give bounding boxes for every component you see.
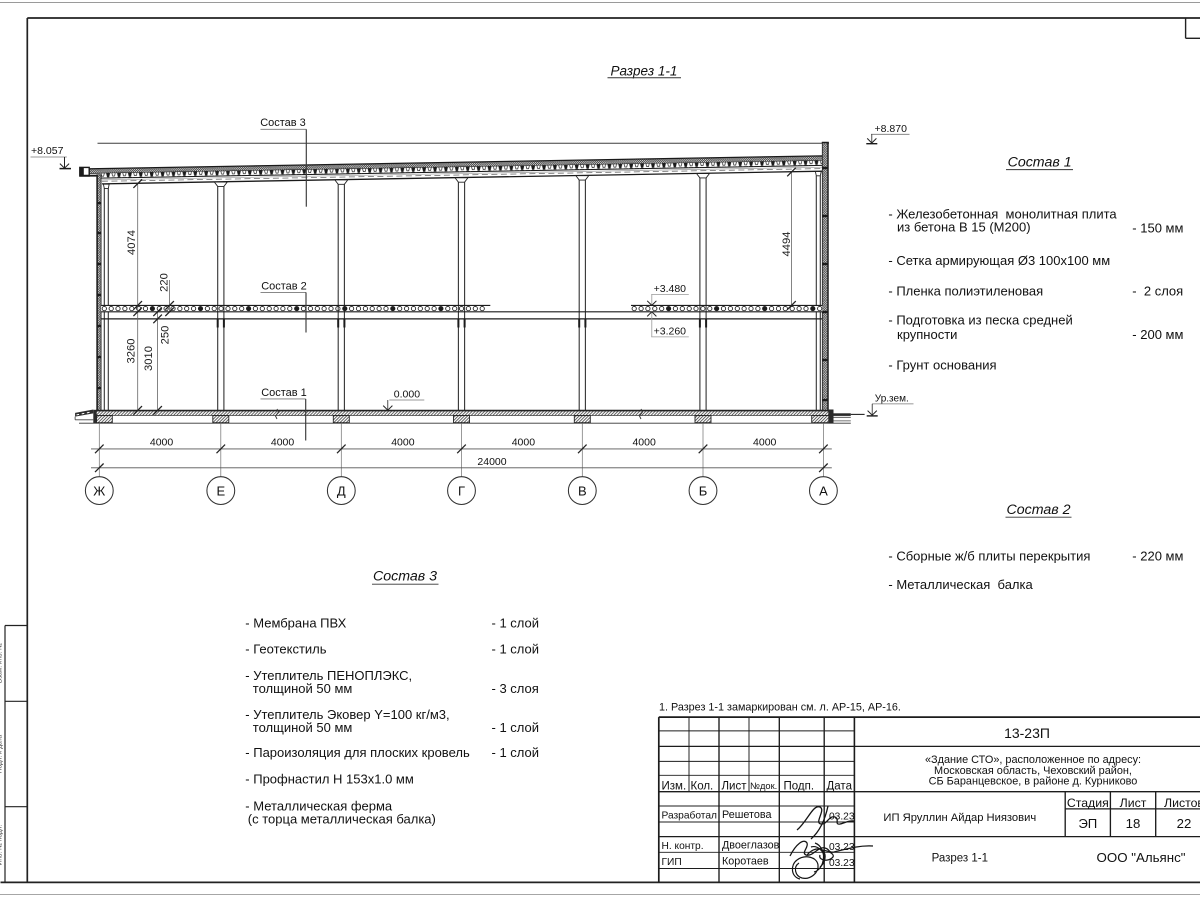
svg-text:4000: 4000: [753, 437, 777, 449]
svg-text:Состав 3: Состав 3: [373, 568, 437, 584]
svg-text:Разрез 1-1: Разрез 1-1: [611, 63, 678, 78]
svg-text:Подп.: Подп.: [784, 780, 815, 792]
svg-text:№док.: №док.: [750, 781, 777, 791]
svg-text:Состав 1: Состав 1: [261, 387, 307, 399]
svg-text:- Профнастил Н 153х1.0 мм: - Профнастил Н 153х1.0 мм: [245, 772, 414, 787]
svg-text:3260: 3260: [126, 339, 138, 364]
svg-text:4000: 4000: [391, 437, 415, 449]
svg-text:Е: Е: [216, 483, 225, 498]
svg-text:Решетова: Решетова: [722, 809, 772, 821]
svg-text:Н. контр.: Н. контр.: [662, 841, 704, 852]
svg-text:24000: 24000: [477, 456, 506, 468]
svg-text:- 200 мм: - 200 мм: [1132, 327, 1183, 342]
svg-text:ООО "Альянс": ООО "Альянс": [1097, 850, 1186, 865]
svg-text:Коротаев: Коротаев: [722, 856, 769, 868]
svg-text:Состав 3: Состав 3: [260, 117, 306, 129]
svg-text:13-23П: 13-23П: [1004, 725, 1050, 741]
svg-text:3010: 3010: [143, 346, 155, 371]
svg-text:Состав 2: Состав 2: [1006, 502, 1070, 518]
svg-text:- 1 слой: - 1 слой: [492, 720, 540, 735]
svg-text:ГИП: ГИП: [662, 857, 682, 868]
svg-text:Б: Б: [699, 483, 708, 498]
svg-text:250: 250: [160, 326, 172, 345]
svg-text:толщиной 50 мм: толщиной 50 мм: [253, 720, 353, 735]
svg-text:+8.057: +8.057: [31, 145, 64, 157]
svg-text:- Геотекстиль: - Геотекстиль: [245, 642, 326, 657]
svg-text:Лист: Лист: [722, 780, 748, 792]
svg-text:- 150 мм: - 150 мм: [1132, 221, 1183, 236]
svg-text:0.000: 0.000: [394, 389, 420, 401]
svg-text:Состав 1: Состав 1: [1008, 154, 1072, 170]
svg-text:Взам. инв. №: Взам. инв. №: [0, 643, 4, 683]
svg-text:220: 220: [159, 273, 171, 292]
svg-text:- Мембрана ПВХ: - Мембрана ПВХ: [245, 616, 346, 631]
svg-text:Ур.зем.: Ур.зем.: [875, 394, 909, 405]
svg-text:- Пленка полиэтиленовая: - Пленка полиэтиленовая: [888, 284, 1043, 299]
svg-text:- 1 слой: - 1 слой: [492, 745, 540, 760]
svg-text:4074: 4074: [126, 230, 138, 255]
svg-text:- 1 слой: - 1 слой: [492, 642, 540, 657]
svg-text:- Грунт основания: - Грунт основания: [888, 358, 996, 373]
svg-text:ИП Яруллин Айдар Ниязович: ИП Яруллин Айдар Ниязович: [883, 812, 1036, 824]
svg-text:(с торца металлическая балка): (с торца металлическая балка): [248, 812, 436, 827]
svg-text:4000: 4000: [512, 437, 536, 449]
svg-text:Ж: Ж: [93, 483, 105, 498]
svg-text:Д: Д: [337, 483, 346, 498]
svg-text:1. Разрез 1-1 замаркирован см.: 1. Разрез 1-1 замаркирован см. л. АР-15,…: [659, 702, 901, 714]
svg-text:Двоеглазов: Двоеглазов: [722, 840, 780, 852]
svg-text:толщиной 50 мм: толщиной 50 мм: [253, 681, 353, 696]
svg-text:- Сборные ж/б плиты перекрытия: - Сборные ж/б плиты перекрытия: [888, 548, 1090, 563]
svg-text:+3.260: +3.260: [654, 326, 687, 338]
svg-text:из бетона В 15 (М200): из бетона В 15 (М200): [897, 220, 1031, 235]
svg-text:22: 22: [1177, 816, 1192, 831]
svg-text:- 220 мм: - 220 мм: [1132, 548, 1183, 563]
svg-text:Дата: Дата: [827, 780, 853, 792]
svg-text:- Подготовка из песка средней: - Подготовка из песка средней: [888, 313, 1072, 328]
svg-text:+3.480: +3.480: [654, 283, 687, 295]
svg-text:18: 18: [1126, 816, 1141, 831]
svg-text:- 3 слоя: - 3 слоя: [492, 681, 539, 696]
svg-text:4000: 4000: [271, 437, 295, 449]
svg-text:- 2 слоя: - 2 слоя: [1132, 284, 1183, 299]
svg-text:В: В: [578, 483, 587, 498]
svg-text:- 1 слой: - 1 слой: [492, 616, 540, 631]
svg-text:Стадия: Стадия: [1067, 796, 1109, 810]
svg-text:Состав 2: Состав 2: [261, 280, 307, 292]
svg-text:Лист: Лист: [1120, 796, 1147, 810]
svg-text:Листов: Листов: [1164, 796, 1200, 810]
svg-text:Инв. № подл.: Инв. № подл.: [0, 825, 4, 866]
svg-text:крупности: крупности: [897, 327, 957, 342]
svg-text:ЭП: ЭП: [1078, 816, 1097, 831]
svg-text:4494: 4494: [781, 232, 793, 257]
svg-text:А: А: [819, 483, 828, 498]
svg-text:4000: 4000: [632, 437, 656, 449]
svg-text:Подп. и дата: Подп. и дата: [0, 734, 4, 773]
svg-text:Г: Г: [458, 483, 465, 498]
svg-text:СБ Баранцевское, в районе д. К: СБ Баранцевское, в районе д. Курниково: [929, 775, 1138, 787]
svg-text:4000: 4000: [150, 437, 174, 449]
svg-text:03.23: 03.23: [829, 858, 855, 869]
svg-text:Кол.: Кол.: [691, 780, 714, 792]
svg-text:Изм.: Изм.: [662, 780, 687, 792]
svg-text:+8.870: +8.870: [875, 123, 908, 135]
svg-text:- Сетка армирующая Ø3 100х100: - Сетка армирующая Ø3 100х100 мм: [888, 253, 1110, 268]
svg-text:- Металлическая балка: - Металлическая балка: [888, 577, 1033, 592]
svg-text:Разработал: Разработал: [662, 809, 718, 821]
svg-text:Разрез 1-1: Разрез 1-1: [932, 852, 988, 864]
svg-text:- Пароизоляция для плоских кро: - Пароизоляция для плоских кровель: [245, 745, 470, 760]
